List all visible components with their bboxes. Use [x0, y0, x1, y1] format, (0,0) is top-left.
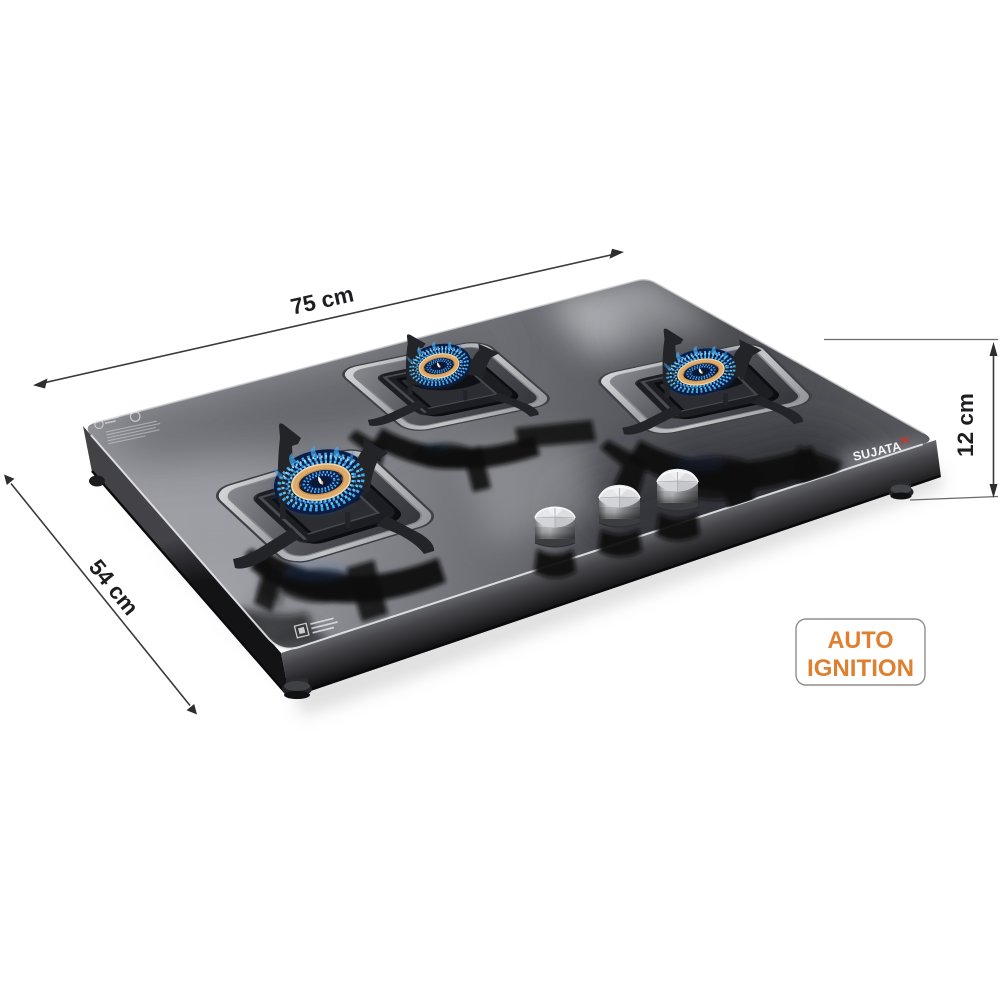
svg-text:AUTO: AUTO: [828, 627, 894, 654]
svg-text:12 cm: 12 cm: [953, 393, 978, 457]
svg-text:IGNITION: IGNITION: [807, 655, 914, 682]
